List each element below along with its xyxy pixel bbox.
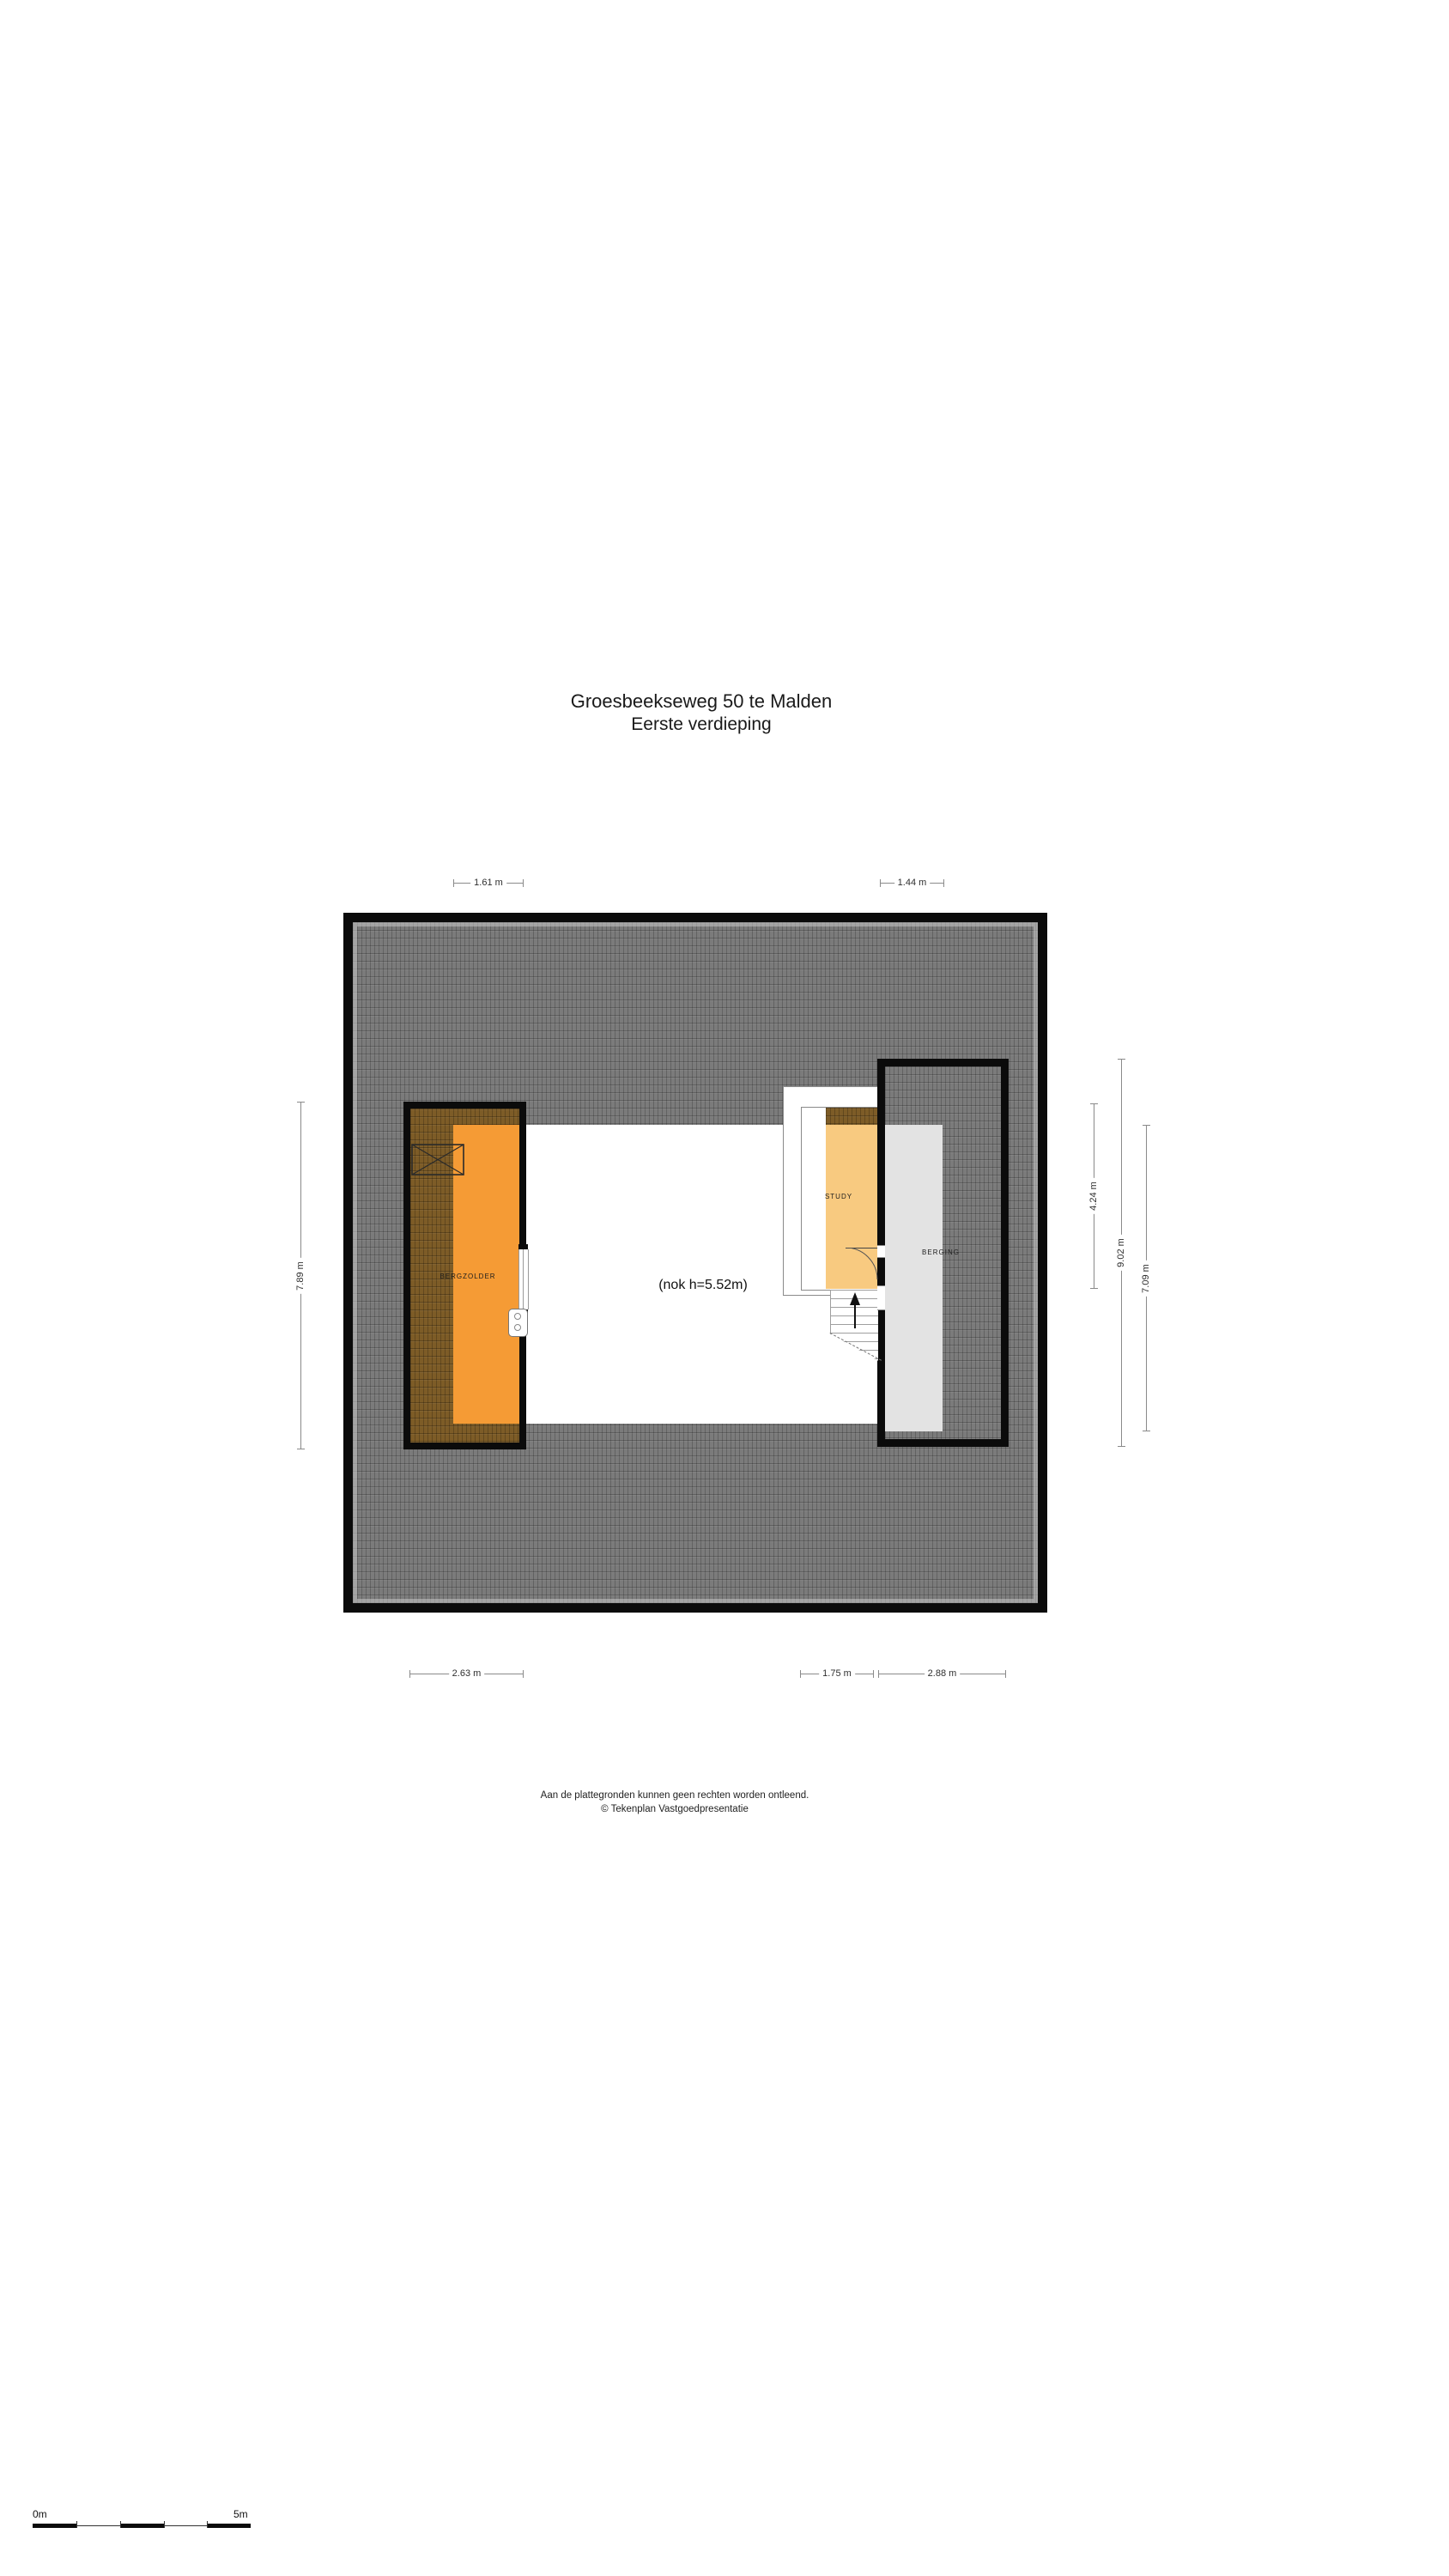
- wall-cap: [518, 1244, 528, 1249]
- dimension-right-outer: 7.09 m: [1141, 1125, 1151, 1431]
- scalebar: [33, 2523, 251, 2528]
- scalebar-segment: [33, 2524, 76, 2528]
- scalebar-tick: [207, 2521, 208, 2528]
- scalebar-tick: [120, 2521, 121, 2528]
- stair-direction-arrow: [854, 1304, 856, 1328]
- scalebar-end-label: 5m: [233, 2508, 248, 2520]
- room-label-study: STUDY: [813, 1193, 864, 1200]
- dimension-top-left: 1.61 m: [453, 878, 524, 888]
- dimension-top-right: 1.44 m: [880, 878, 944, 888]
- disclaimer-text: Aan de plattegronden kunnen geen rechten…: [0, 1790, 1349, 1801]
- window-icon: [518, 1249, 529, 1309]
- dimension-right-inner: 4.24 m: [1088, 1103, 1099, 1289]
- dimension-label: 9.02 m: [1116, 1235, 1126, 1271]
- copyright-text: © Tekenplan Vastgoedpresentatie: [0, 1804, 1349, 1814]
- dimension-label: 7.09 m: [1141, 1261, 1151, 1297]
- ridge-height-label: (nok h=5.52m): [617, 1278, 789, 1293]
- room-label-berging: BERGING: [898, 1249, 984, 1256]
- scalebar-tick: [76, 2521, 77, 2528]
- door-swing-arc: [846, 1248, 880, 1282]
- page-title: Groesbeekseweg 50 te Malden: [0, 690, 1403, 713]
- dimension-left: 7.89 m: [295, 1102, 306, 1449]
- scalebar-tick: [164, 2521, 165, 2528]
- study-roof-band: [826, 1108, 878, 1125]
- scalebar-start-label: 0m: [33, 2508, 47, 2520]
- dimension-label: 1.75 m: [819, 1668, 855, 1679]
- dimension-label: 4.24 m: [1088, 1178, 1099, 1214]
- page-subtitle: Eerste verdieping: [0, 714, 1403, 735]
- wall-opening: [877, 1285, 885, 1310]
- skylight-icon: [411, 1144, 464, 1176]
- dimension-label: 1.44 m: [894, 878, 931, 888]
- boiler-dial: [514, 1313, 521, 1320]
- stair-direction-arrow-head: [850, 1292, 860, 1305]
- dimension-right-mid: 9.02 m: [1116, 1059, 1126, 1447]
- scalebar-segment: [120, 2524, 164, 2528]
- boiler-icon: [508, 1309, 528, 1337]
- dimension-label: 7.89 m: [295, 1258, 306, 1294]
- dimension-bottom-left: 2.63 m: [409, 1668, 524, 1679]
- dimension-bottom-mid: 1.75 m: [800, 1668, 874, 1679]
- boiler-dial: [514, 1324, 521, 1331]
- dimension-label: 1.61 m: [470, 878, 506, 888]
- floorplan-page: Groesbeekseweg 50 te Malden Eerste verdi…: [0, 0, 1449, 2576]
- room-berging: [885, 1125, 943, 1431]
- scalebar-segment: [207, 2524, 251, 2528]
- dimension-label: 2.88 m: [925, 1668, 961, 1679]
- dimension-label: 2.63 m: [449, 1668, 485, 1679]
- room-label-bergzolder: BERGZOLDER: [425, 1273, 511, 1280]
- dimension-bottom-right: 2.88 m: [878, 1668, 1006, 1679]
- wall-opening: [877, 1245, 885, 1258]
